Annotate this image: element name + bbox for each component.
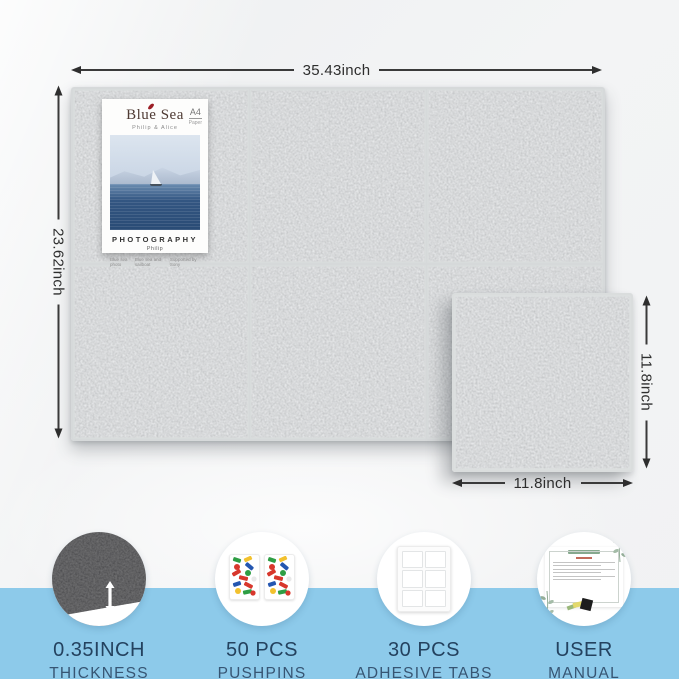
- poster-caption: PHOTOGRAPHY: [110, 235, 200, 244]
- feature-value: USER: [499, 639, 669, 662]
- feature-thickness: 0.35INCH THICKNESS: [14, 532, 184, 679]
- adhesive-tab-sheet-icon: [377, 532, 471, 626]
- footnote: Supported by Sony: [170, 257, 200, 267]
- arrowhead-left-icon: [71, 66, 81, 74]
- leaf-decoration-icon: [538, 590, 556, 620]
- feature-label: ADHESIVE TABS: [339, 665, 509, 679]
- pinned-poster: Blue Sea A4 Paper Philip & Alice PHOTOGR…: [102, 99, 208, 253]
- arrowhead-up-icon: [55, 86, 63, 96]
- poster-author: Philip: [110, 246, 200, 252]
- footnote: Blue sea and sailboat: [135, 257, 169, 267]
- paper-size-badge: A4 Paper: [189, 107, 202, 126]
- dimension-tile-width-label: 11.8inch: [505, 475, 581, 492]
- poster-header: Blue Sea A4 Paper: [110, 106, 200, 124]
- dimension-tile-height: 11.8inch: [639, 296, 655, 469]
- paper-type-label: Paper: [189, 120, 202, 126]
- poster-title: Blue Sea: [126, 107, 184, 123]
- dimension-board-width-label: 35.43inch: [294, 62, 380, 79]
- thickness-double-arrow-icon: [104, 580, 116, 614]
- sailboat-icon: [151, 170, 161, 184]
- footnote: Blue sea photo: [110, 257, 134, 267]
- leaf-decoration-icon: [611, 533, 629, 563]
- sea-surface: [110, 184, 200, 230]
- feature-value: 50 PCS: [177, 639, 347, 662]
- user-manual-icon: [537, 532, 631, 626]
- arrowhead-right-icon: [592, 66, 602, 74]
- black-felt-thickness-icon: [52, 532, 146, 626]
- feature-value: 30 PCS: [339, 639, 509, 662]
- feature-user-manual: USER MANUAL: [499, 532, 669, 679]
- sea-photo: [110, 135, 200, 230]
- sea-ripples: [110, 184, 200, 230]
- poster-subtitle: Philip & Alice: [110, 125, 200, 131]
- pushpin-box: [229, 554, 260, 600]
- arrowhead-down-icon: [55, 429, 63, 439]
- feature-label: MANUAL: [499, 665, 669, 679]
- paper-size-label: A4: [189, 107, 202, 119]
- felt-tile-single: [452, 293, 633, 472]
- dimension-board-height-label: 23.62inch: [50, 219, 67, 305]
- arrowhead-right-icon: [623, 479, 633, 487]
- dimension-board-width: 35.43inch: [71, 62, 602, 78]
- poster-footnotes: Blue sea photo | Blue sea and sailboat |…: [110, 257, 200, 267]
- felt-tile-graphic: [452, 293, 633, 472]
- arrowhead-up-icon: [643, 296, 651, 306]
- arrowhead-left-icon: [452, 479, 462, 487]
- pushpin-box: [264, 554, 295, 600]
- pushpin-boxes-icon: [215, 532, 309, 626]
- arrowhead-down-icon: [643, 459, 651, 469]
- feature-label: PUSHPINS: [177, 665, 347, 679]
- product-showcase: Blue Sea A4 Paper Philip & Alice PHOTOGR…: [0, 0, 679, 679]
- feature-value: 0.35INCH: [14, 639, 184, 662]
- feature-pushpins: 50 PCS PUSHPINS: [177, 532, 347, 679]
- feature-label: THICKNESS: [14, 665, 184, 679]
- feature-adhesive-tabs: 30 PCS ADHESIVE TABS: [339, 532, 509, 679]
- dimension-board-height: 23.62inch: [51, 86, 67, 439]
- dimension-tile-width: 11.8inch: [452, 475, 633, 491]
- dimension-tile-height-label: 11.8inch: [638, 344, 655, 420]
